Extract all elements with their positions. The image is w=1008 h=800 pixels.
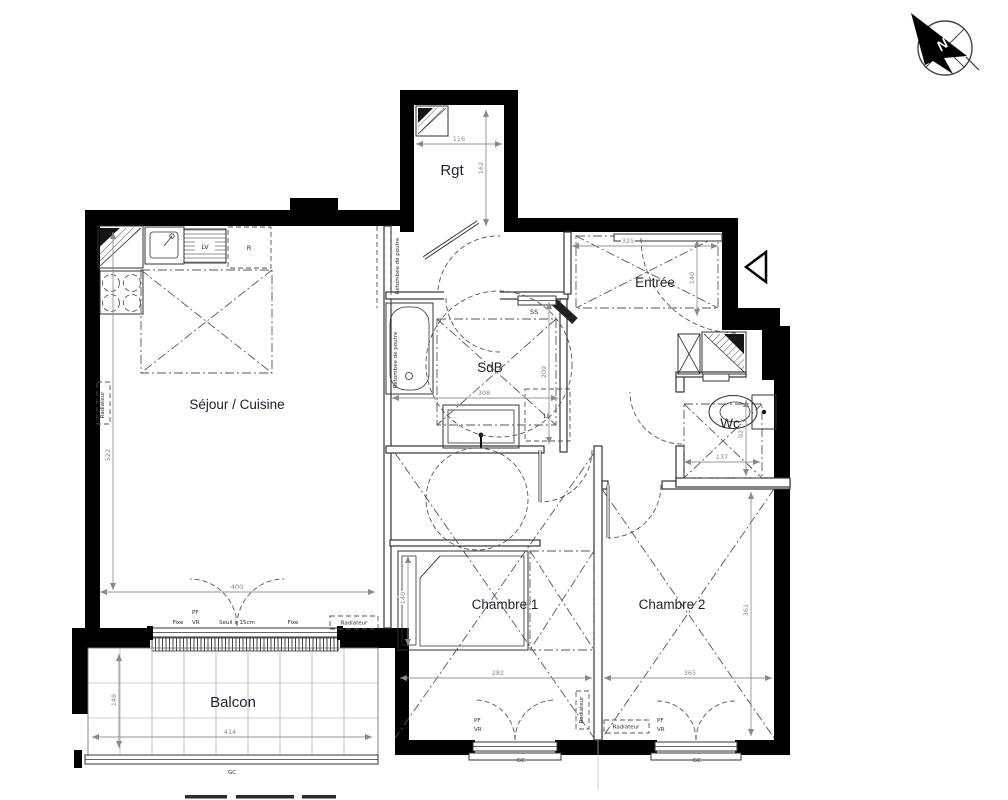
- door-rgt: [424, 222, 500, 290]
- room-label-rgt: Rgt: [440, 162, 464, 179]
- refrigerator: R: [228, 227, 271, 268]
- dim-chambre2-height: 361: [742, 604, 750, 616]
- closet-wc: [678, 334, 700, 374]
- door-chambre1: [540, 450, 592, 502]
- dim-entree-width: 325: [622, 237, 634, 245]
- walls: [72, 90, 790, 768]
- room-label-entree: Entrée: [635, 275, 675, 290]
- door-sdb: [446, 298, 500, 352]
- dim-sejour-height: 522: [104, 449, 112, 461]
- pf-label: PF: [657, 718, 663, 724]
- vr-label: VR: [474, 727, 482, 733]
- beam-annotation-sdb: Retombée de poutre: [392, 331, 399, 388]
- dim-wc-height: 92: [737, 430, 745, 438]
- beam-annotation-hall: Retombée de poutre: [394, 237, 401, 294]
- gc-label: GC: [228, 770, 236, 776]
- seuil-label: Seuil à 15cm: [219, 619, 255, 626]
- duct-shaft-wc: [702, 332, 746, 381]
- floor-plan-canvas: LV R LL SS: [0, 0, 1008, 800]
- room-label-wc: Wc: [720, 416, 740, 431]
- towel-radiator: SS: [518, 296, 556, 316]
- window-shaft-rgt: [416, 106, 448, 136]
- radiator-label: Radiateur: [613, 725, 640, 731]
- vr-label: VR: [192, 620, 200, 626]
- window-chambre1: [469, 700, 561, 760]
- balcony-railing: [85, 755, 378, 764]
- dim-bay-width: 400: [231, 583, 243, 591]
- chambre1-wardrobe: [530, 551, 594, 650]
- towel-radiator-label: SS: [530, 308, 538, 316]
- dim-bed-width: 140: [399, 592, 407, 604]
- cropped-edge-artifact: [185, 795, 336, 799]
- refrigerator-label: R: [247, 244, 252, 252]
- bay-window-sejour: [147, 579, 343, 651]
- washbasin: [443, 405, 519, 448]
- pf-label: PF: [192, 610, 198, 616]
- door-chambre2: [608, 485, 661, 538]
- fixe-label: Fixe: [173, 620, 184, 626]
- dim-entree-height: 140: [688, 272, 696, 284]
- radiator-label: Radiateur: [100, 391, 106, 418]
- room-label-sdb: SdB: [477, 360, 503, 375]
- compass-north-icon: N: [911, 13, 979, 75]
- gc-label: GC: [517, 758, 525, 764]
- kitchen-sink: [145, 227, 184, 264]
- radiator-label: Radiateur: [579, 696, 585, 723]
- fixe-label: Fixe: [288, 620, 299, 626]
- room-label-sejour: Séjour / Cuisine: [189, 397, 284, 412]
- dim-sdb-height: 209: [540, 366, 548, 378]
- room-label-chambre1: Chambre 1: [472, 597, 539, 612]
- dim-wc-width: 137: [716, 453, 728, 461]
- room-label-balcon: Balcon: [210, 694, 256, 711]
- dim-sdb-width: 308: [478, 389, 490, 397]
- floor-plan: LV R LL SS: [0, 0, 1008, 800]
- chambre1-ceiling-marks: [395, 448, 594, 738]
- radiator-chambre2: Radiateur: [604, 720, 649, 733]
- door-wc: [630, 392, 682, 444]
- duct-shaft-kitchen: [98, 226, 143, 268]
- dim-rgt-width: 116: [453, 135, 465, 143]
- pf-label: PF: [474, 718, 480, 724]
- dim-chambre2-width: 365: [684, 669, 696, 677]
- kitchen-zone-outline: [141, 270, 272, 373]
- gc-label: GC: [693, 758, 701, 764]
- dim-rgt-height: 162: [477, 162, 485, 174]
- dim-chambre1-width: 282: [492, 669, 504, 677]
- room-label-chambre2: Chambre 2: [639, 597, 706, 612]
- dim-balcon-width: 414: [224, 728, 236, 736]
- radiator-chambre1: Radiateur: [576, 691, 589, 729]
- entrance-arrow-icon: [746, 252, 766, 282]
- radiator-label: Radiateur: [341, 621, 368, 627]
- dim-balcon-height: 148: [110, 694, 118, 706]
- vr-label: VR: [657, 727, 665, 733]
- dishwasher: LV: [184, 229, 226, 263]
- toilet: [709, 395, 776, 429]
- cooktop: [100, 271, 143, 314]
- dishwasher-label: LV: [201, 243, 209, 251]
